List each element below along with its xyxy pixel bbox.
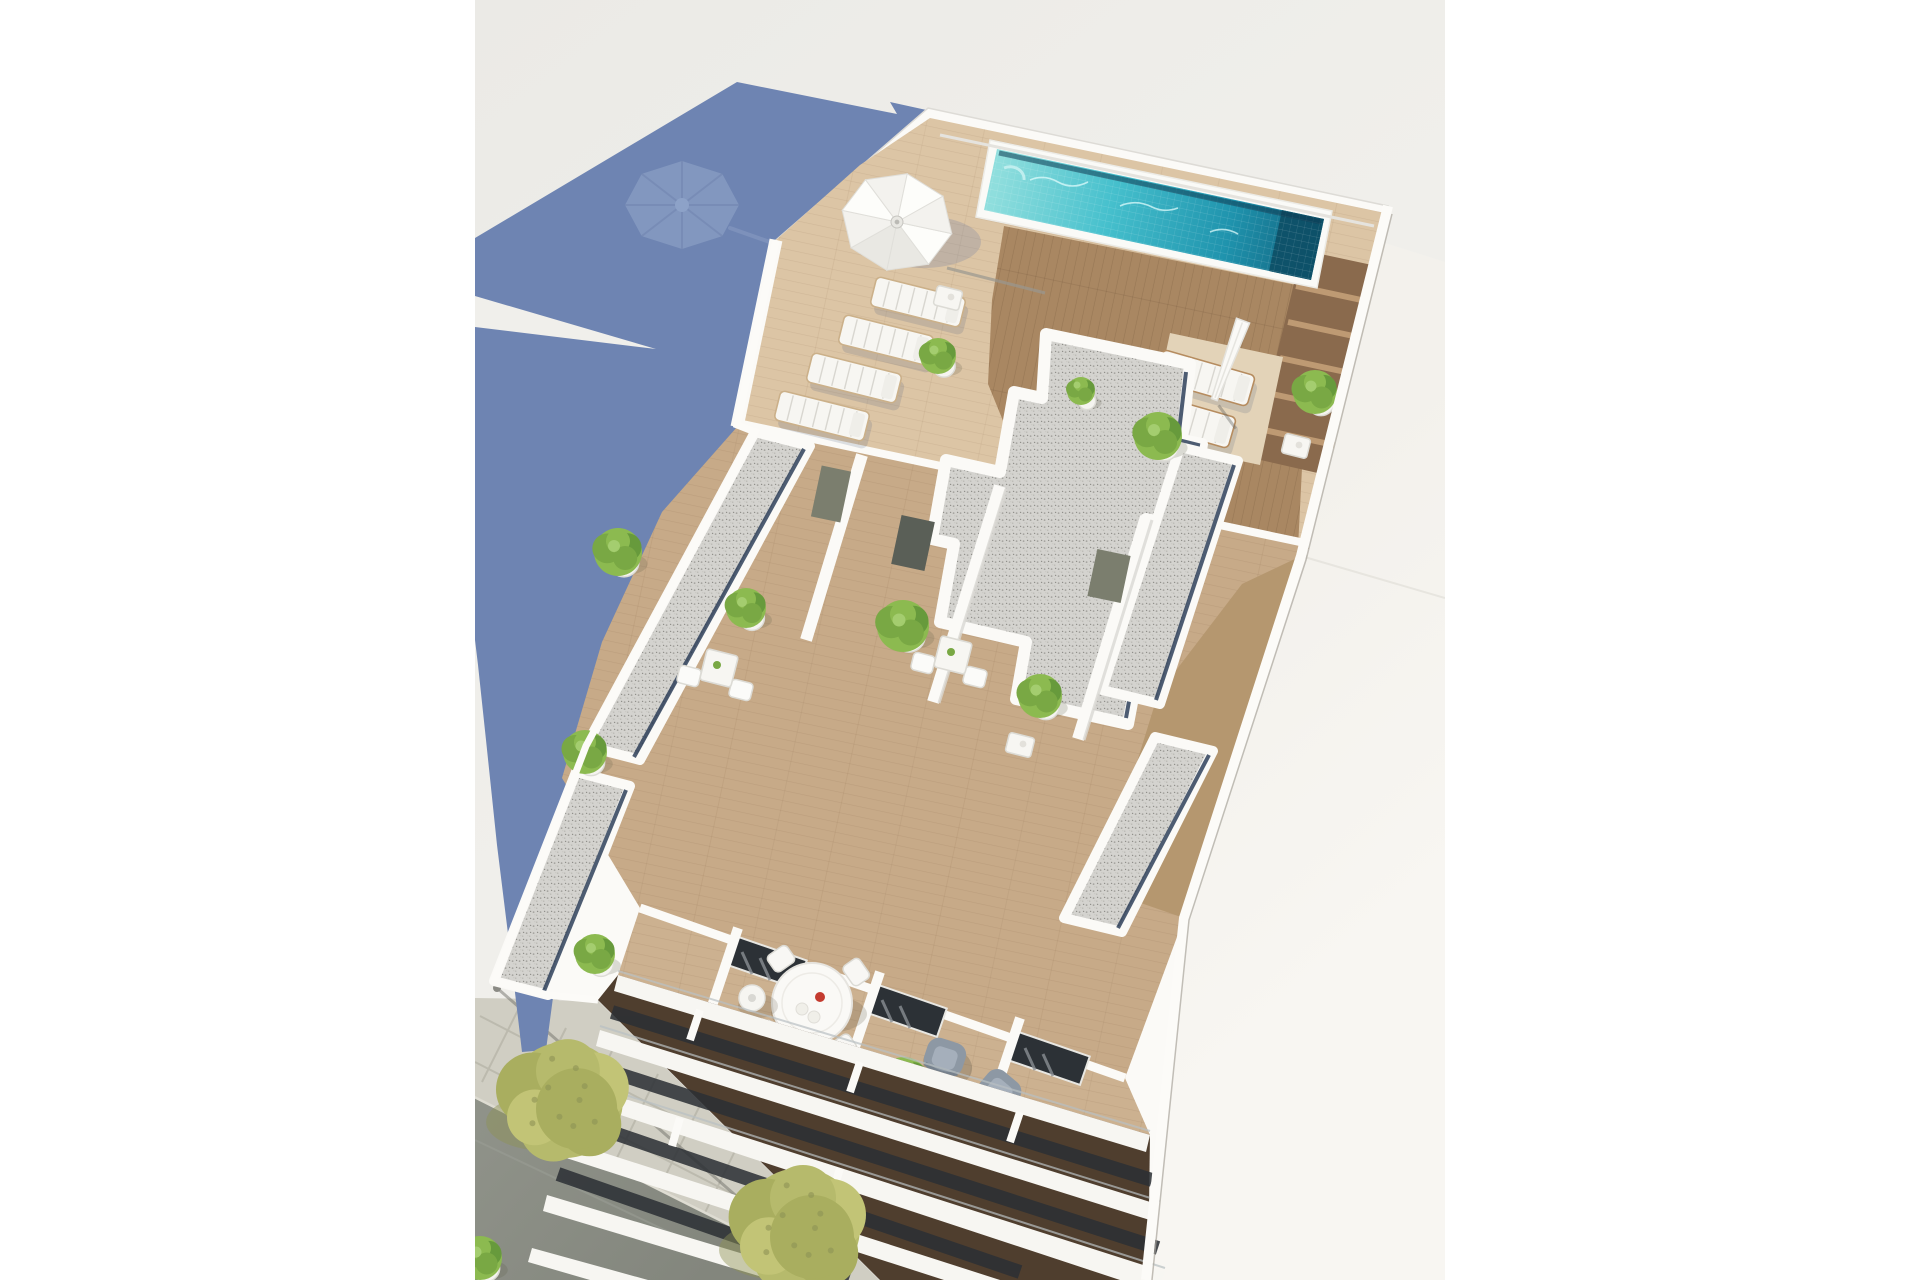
- red-apple: [815, 992, 825, 1002]
- render-canvas: [0, 0, 1920, 1280]
- photo-content: [456, 0, 1445, 1280]
- aerial-building-render: [0, 0, 1920, 1280]
